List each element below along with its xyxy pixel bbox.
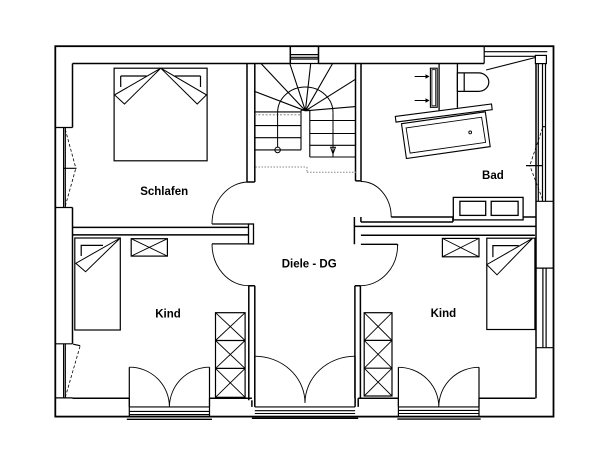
svg-text:Kind: Kind xyxy=(155,308,181,320)
svg-text:Diele - DG: Diele - DG xyxy=(282,258,337,270)
svg-text:Kind: Kind xyxy=(431,308,457,320)
svg-text:Bad: Bad xyxy=(482,170,504,182)
svg-text:Schlafen: Schlafen xyxy=(140,186,188,198)
